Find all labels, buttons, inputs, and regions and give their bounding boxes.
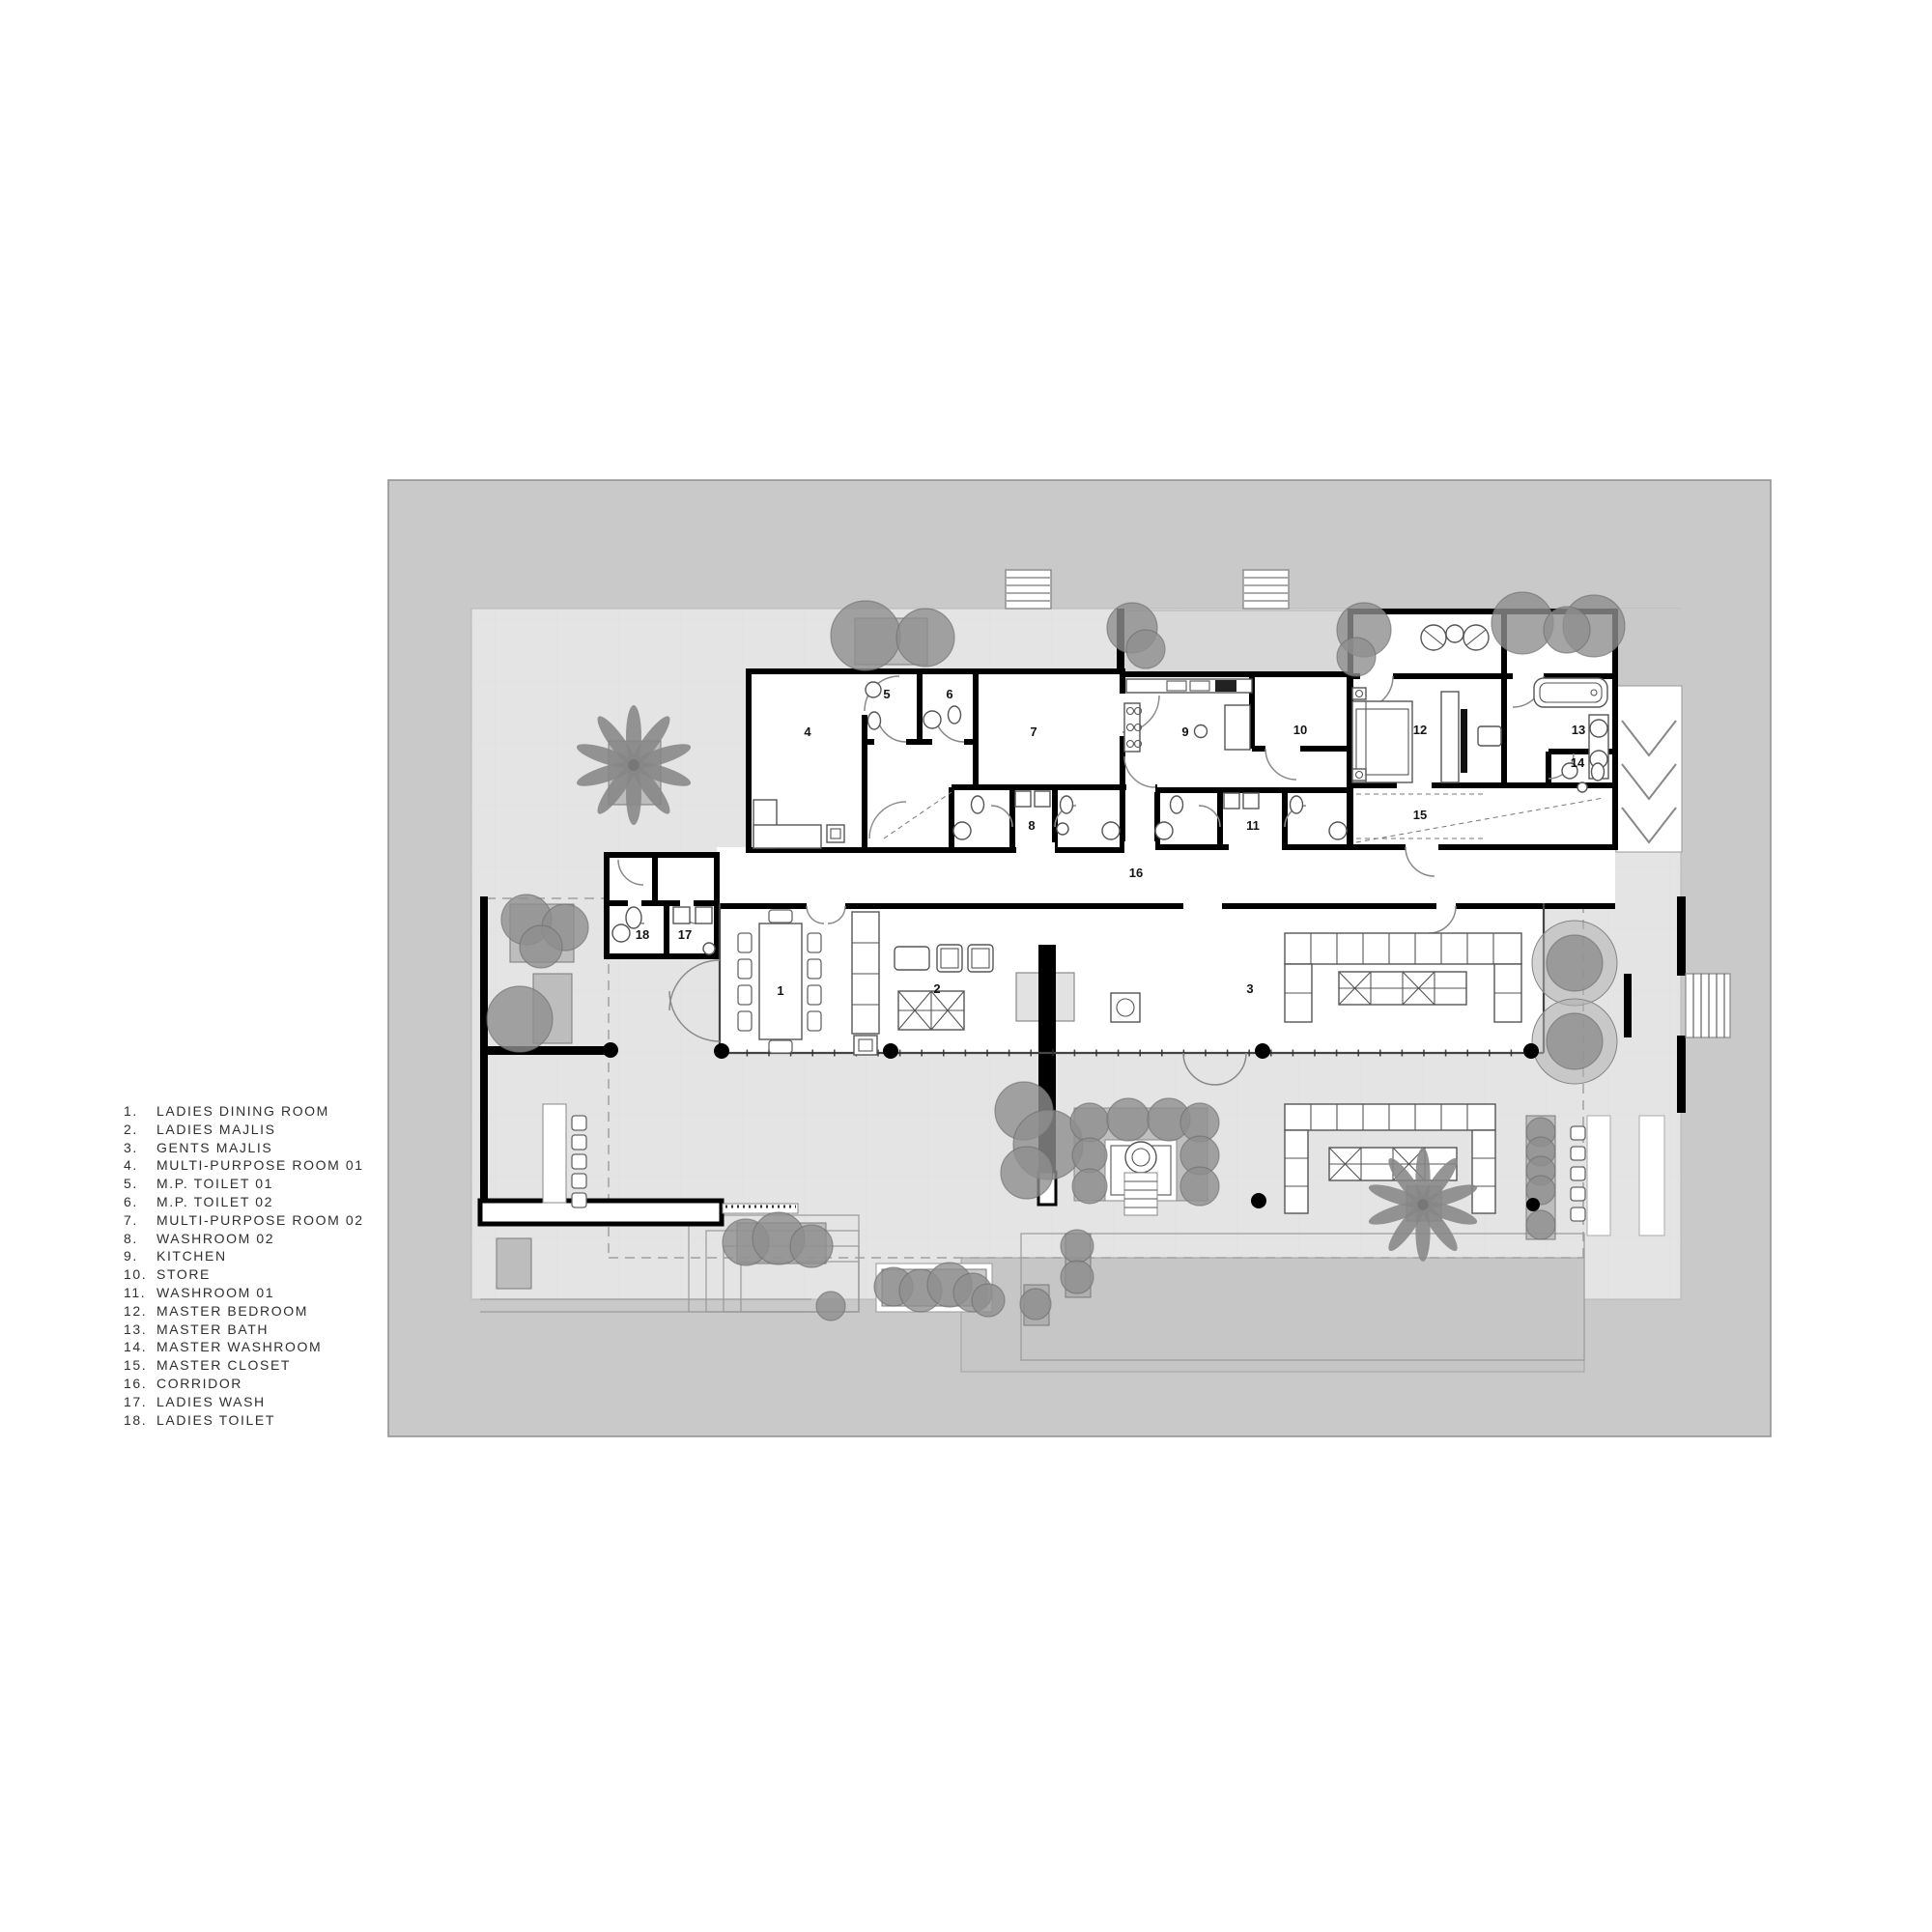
legend-item: 11.WASHROOM 01: [124, 1284, 364, 1302]
legend-item-label: CORRIDOR: [156, 1375, 242, 1393]
column: [1526, 1198, 1540, 1211]
room-label-7: 7: [1030, 724, 1037, 739]
legend-item-number: 14.: [124, 1338, 156, 1356]
garden-platform: [961, 1258, 1584, 1372]
vent-louver: [1243, 570, 1289, 609]
legend-item: 10.STORE: [124, 1265, 364, 1284]
tree: [520, 925, 562, 968]
legend-item-label: MULTI-PURPOSE ROOM 02: [156, 1211, 364, 1230]
legend-item-number: 10.: [124, 1265, 156, 1284]
room-label-17: 17: [678, 927, 692, 942]
legend-item-label: MASTER WASHROOM: [156, 1338, 322, 1356]
legend-item-label: MASTER CLOSET: [156, 1356, 291, 1375]
legend-item: 5.M.P. TOILET 01: [124, 1175, 364, 1193]
tree: [1532, 921, 1617, 1006]
tree: [1532, 999, 1617, 1084]
legend-item-label: MASTER BATH: [156, 1321, 269, 1339]
tree: [1526, 1210, 1555, 1239]
tree: [1072, 1138, 1107, 1173]
legend-item-label: WASHROOM 01: [156, 1284, 274, 1302]
legend-item: 17.LADIES WASH: [124, 1393, 364, 1411]
room-label-8: 8: [1028, 818, 1035, 833]
multi-purpose-wing: [749, 671, 1122, 850]
tree: [1061, 1230, 1094, 1263]
tree: [972, 1284, 1005, 1317]
tree: [790, 1225, 833, 1267]
tree: [1492, 592, 1553, 654]
legend-item-number: 9.: [124, 1247, 156, 1265]
room-label-3: 3: [1246, 981, 1253, 996]
column: [883, 1043, 898, 1059]
room-label-2: 2: [933, 981, 940, 996]
tree: [1020, 1289, 1051, 1320]
legend-item-number: 6.: [124, 1193, 156, 1211]
legend-item-number: 17.: [124, 1393, 156, 1411]
column: [714, 1043, 729, 1059]
room-label-16: 16: [1129, 866, 1143, 880]
legend-item: 4.MULTI-PURPOSE ROOM 01: [124, 1156, 364, 1175]
legend-item-label: MASTER BEDROOM: [156, 1302, 308, 1321]
legend-item: 18.LADIES TOILET: [124, 1411, 364, 1430]
legend-item-label: STORE: [156, 1265, 211, 1284]
legend-item: 12.MASTER BEDROOM: [124, 1302, 364, 1321]
legend-item: 14.MASTER WASHROOM: [124, 1338, 364, 1356]
tree: [1107, 1098, 1150, 1141]
privacy-wall: [1677, 896, 1686, 976]
room-label-5: 5: [883, 687, 890, 701]
legend-item: 15.MASTER CLOSET: [124, 1356, 364, 1375]
tree: [896, 609, 954, 667]
entry-steps: [1686, 974, 1730, 1037]
legend-item-number: 8.: [124, 1230, 156, 1248]
room-label-4: 4: [804, 724, 811, 739]
tree: [831, 601, 900, 670]
floor-plan-sheet: 1 2 3 4 5 6 7 8 9 10 11 12 13 14 15 16 1…: [0, 0, 1932, 1932]
room-label-1: 1: [777, 983, 783, 998]
vent-louver: [1006, 570, 1051, 609]
legend-item-number: 15.: [124, 1356, 156, 1375]
legend-item-label: M.P. TOILET 01: [156, 1175, 273, 1193]
legend-item: 9.KITCHEN: [124, 1247, 364, 1265]
legend-item-number: 2.: [124, 1121, 156, 1139]
tree: [1337, 638, 1376, 676]
room-label-10: 10: [1293, 723, 1307, 737]
corridor-floor: [717, 847, 1615, 903]
legend-item-number: 7.: [124, 1211, 156, 1230]
legend-item-number: 16.: [124, 1375, 156, 1393]
legend-item: 1.LADIES DINING ROOM: [124, 1102, 364, 1121]
legend-item-number: 12.: [124, 1302, 156, 1321]
legend-item-label: MULTI-PURPOSE ROOM 01: [156, 1156, 364, 1175]
tree: [1180, 1167, 1219, 1206]
privacy-wall: [1677, 1036, 1686, 1113]
legend-item-number: 4.: [124, 1156, 156, 1175]
site-notch: [1615, 609, 1682, 686]
legend-item-label: WASHROOM 02: [156, 1230, 274, 1248]
column: [1251, 1193, 1266, 1208]
legend-item: 6.M.P. TOILET 02: [124, 1193, 364, 1211]
chevron-ramp: [1616, 686, 1682, 852]
room-label-15: 15: [1413, 808, 1427, 822]
legend-item: 2.LADIES MAJLIS: [124, 1121, 364, 1139]
legend-item: 16.CORRIDOR: [124, 1375, 364, 1393]
legend-item-label: M.P. TOILET 02: [156, 1193, 273, 1211]
tree: [816, 1292, 845, 1321]
legend-item: 7.MULTI-PURPOSE ROOM 02: [124, 1211, 364, 1230]
tree: [1070, 1103, 1109, 1142]
room-label-11: 11: [1246, 818, 1260, 833]
legend-item-label: LADIES DINING ROOM: [156, 1102, 329, 1121]
floor-plan-svg: 1 2 3 4 5 6 7 8 9 10 11 12 13 14 15 16 1…: [0, 0, 1932, 1932]
legend-item-number: 11.: [124, 1284, 156, 1302]
room-label-6: 6: [946, 687, 952, 701]
column: [1255, 1043, 1270, 1059]
room-label-13: 13: [1572, 723, 1585, 737]
tree: [1544, 607, 1590, 653]
legend-item-label: KITCHEN: [156, 1247, 227, 1265]
tree: [1126, 630, 1165, 668]
light-fixture-icon: [1195, 725, 1207, 738]
room-label-14: 14: [1571, 755, 1585, 770]
legend-item-number: 5.: [124, 1175, 156, 1193]
legend-item-number: 3.: [124, 1139, 156, 1157]
legend-item: 13.MASTER BATH: [124, 1321, 364, 1339]
legend-item-label: GENTS MAJLIS: [156, 1139, 272, 1157]
privacy-wall: [1624, 974, 1632, 1037]
tree: [487, 986, 553, 1052]
legend-item: 3.GENTS MAJLIS: [124, 1139, 364, 1157]
tree: [1061, 1261, 1094, 1293]
room-legend: 1.LADIES DINING ROOM 2.LADIES MAJLIS 3.G…: [124, 1102, 364, 1429]
room-label-18: 18: [636, 927, 649, 942]
tree: [1072, 1169, 1107, 1204]
room-label-9: 9: [1181, 724, 1188, 739]
planter: [497, 1238, 531, 1289]
legend-item-label: LADIES MAJLIS: [156, 1121, 276, 1139]
legend-item-number: 1.: [124, 1102, 156, 1121]
room-label-12: 12: [1413, 723, 1427, 737]
column: [1523, 1043, 1539, 1059]
legend-item: 8.WASHROOM 02: [124, 1230, 364, 1248]
tree: [1001, 1147, 1053, 1199]
legend-item-label: LADIES TOILET: [156, 1411, 275, 1430]
legend-item-label: LADIES WASH: [156, 1393, 266, 1411]
legend-item-number: 13.: [124, 1321, 156, 1339]
legend-item-number: 18.: [124, 1411, 156, 1430]
column: [603, 1042, 618, 1058]
